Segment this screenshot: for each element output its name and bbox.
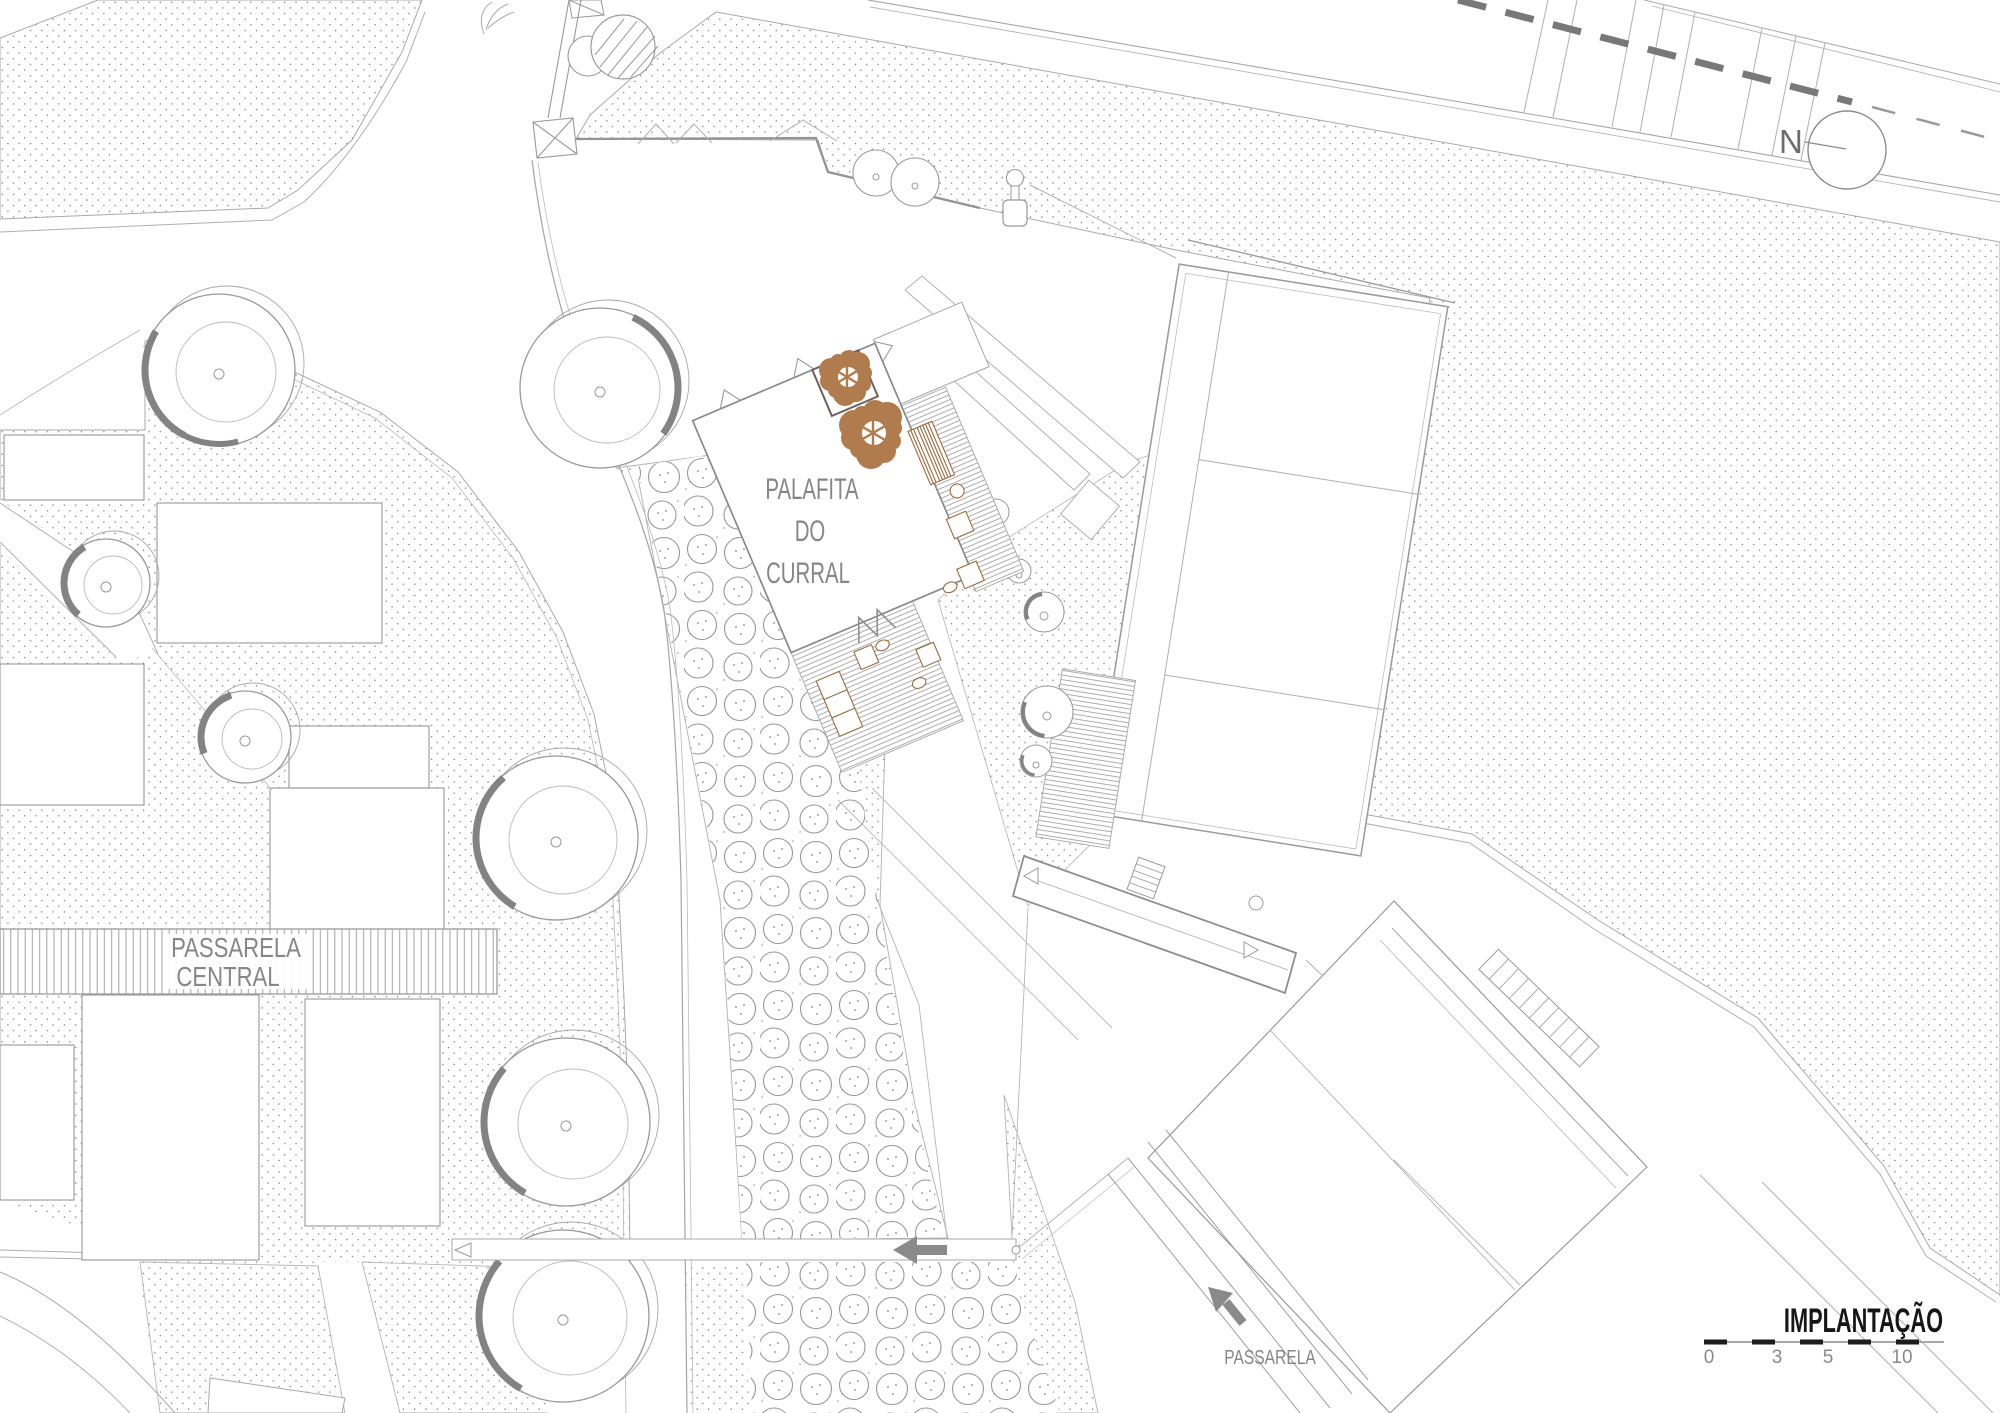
svg-text:PALAFITA: PALAFITA [765,473,859,506]
svg-text:3: 3 [1772,1347,1783,1368]
svg-text:0: 0 [1704,1347,1715,1368]
svg-text:CURRAL: CURRAL [766,557,850,590]
svg-text:DO: DO [795,515,826,548]
svg-text:PASSARELA: PASSARELA [1224,1346,1316,1368]
svg-text:IMPLANTAÇÃO: IMPLANTAÇÃO [1784,1302,1943,1340]
svg-text:5: 5 [1823,1347,1834,1368]
svg-text:N: N [1779,123,1803,160]
svg-text:10: 10 [1891,1347,1912,1368]
svg-text:CENTRAL: CENTRAL [176,962,279,993]
svg-text:PASSARELA: PASSARELA [171,933,301,964]
